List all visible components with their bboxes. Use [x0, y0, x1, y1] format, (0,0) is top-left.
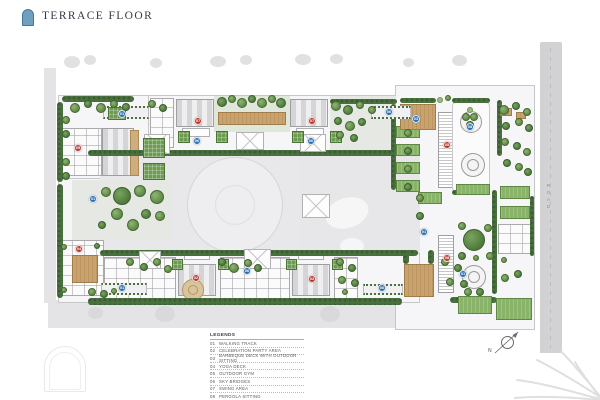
- tree-icon: [437, 97, 443, 103]
- legend-marker-07: 07: [194, 117, 202, 125]
- lawn-patch: [456, 184, 490, 195]
- tree-icon: [153, 258, 161, 266]
- legend-marker-06: 06: [385, 108, 393, 116]
- roof-garden: [216, 131, 228, 143]
- legend-marker-06: 06: [243, 267, 251, 275]
- skylight-canopy: [302, 194, 330, 218]
- tree-icon: [515, 163, 523, 171]
- lawn-patch: [496, 298, 532, 320]
- tree-icon: [404, 129, 412, 137]
- tree-icon: [336, 131, 344, 139]
- tree-icon: [237, 98, 247, 108]
- tree-icon: [61, 244, 67, 250]
- legend-header: LEGENDS: [210, 333, 304, 340]
- legend-row-label: SWING AREA: [219, 386, 248, 391]
- wooden-deck: [218, 112, 286, 125]
- hedge-row: [428, 250, 434, 264]
- developer-logo-watermark-inner: [49, 352, 81, 390]
- legend-rows: 01WALKING TRACK02CELEBRATION PARTY AREA0…: [210, 340, 304, 400]
- roof-garden: [143, 163, 165, 180]
- hedge-row: [452, 98, 490, 103]
- tree-icon: [460, 280, 468, 288]
- legend-marker-02: 02: [192, 274, 200, 282]
- legend-row-label: WALKING TRACK: [219, 341, 257, 346]
- hedge-row: [57, 102, 63, 182]
- tree-icon: [356, 101, 364, 109]
- hedge-row: [530, 196, 534, 256]
- legend-marker-05: 05: [74, 144, 82, 152]
- tree-icon: [150, 190, 164, 204]
- wooden-deck: [404, 264, 434, 297]
- tree-icon: [148, 100, 156, 108]
- compass-north-label: N: [488, 348, 492, 354]
- tree-icon: [467, 107, 473, 113]
- tree-icon: [126, 258, 134, 266]
- hedge-row: [403, 250, 409, 264]
- legend-row-label: SKY BRIDGES: [219, 379, 250, 384]
- tree-icon: [404, 165, 412, 173]
- legend-marker-05: 05: [443, 141, 451, 149]
- roof-garden: [286, 259, 297, 270]
- palm-leaf-watermark: [513, 350, 600, 400]
- tree-icon: [368, 106, 376, 114]
- tree-icon: [336, 258, 344, 266]
- tree-icon: [358, 118, 366, 126]
- legend-row-number: 01: [210, 341, 219, 346]
- tree-icon: [159, 104, 167, 112]
- tree-icon: [348, 264, 356, 272]
- tree-icon: [100, 290, 108, 298]
- legend-row: 01WALKING TRACK: [210, 340, 304, 348]
- lawn-patch: [500, 206, 530, 219]
- tree-icon: [524, 168, 532, 176]
- roof-garden: [178, 131, 190, 143]
- tree-icon: [218, 258, 226, 266]
- tree-icon: [248, 95, 256, 103]
- legend-row: 07SWING AREA: [210, 386, 304, 394]
- tree-icon: [512, 102, 520, 110]
- legend-row-number: 06: [210, 379, 219, 384]
- tree-icon: [62, 158, 70, 166]
- legend-row: 06SKY BRIDGES: [210, 378, 304, 386]
- tree-icon: [463, 229, 485, 251]
- tree-icon: [501, 257, 507, 263]
- legend-row-number: 08: [210, 394, 219, 399]
- tree-icon: [127, 219, 139, 231]
- tree-icon: [343, 105, 353, 115]
- tree-icon: [473, 255, 479, 261]
- legend-row: 03BARBEQUE DECK WITH OUTDOOR SITTING: [210, 355, 304, 363]
- tree-icon: [458, 252, 466, 260]
- legend-row-label: BARBEQUE DECK WITH OUTDOOR SITTING: [219, 353, 304, 363]
- tree-icon: [70, 103, 80, 113]
- legend-marker-02: 02: [308, 275, 316, 283]
- tree-icon: [110, 100, 118, 108]
- tree-icon: [486, 252, 494, 260]
- lawn-patch: [458, 296, 492, 314]
- tree-icon: [334, 117, 342, 125]
- tree-icon: [134, 185, 146, 197]
- legend-marker-06: 06: [307, 137, 315, 145]
- hedge-row: [57, 184, 63, 298]
- tree-icon: [476, 288, 484, 296]
- lawn-patch: [500, 186, 530, 199]
- legend-marker-08: 08: [466, 123, 474, 131]
- tree-icon: [342, 289, 348, 295]
- tree-icon: [515, 118, 523, 126]
- tree-icon: [268, 95, 276, 103]
- tree-icon: [98, 221, 106, 229]
- legend-row-number: 03: [210, 356, 219, 361]
- legend-row-label: OUTDOOR GYM: [219, 371, 254, 376]
- tree-icon: [254, 264, 262, 272]
- legend-marker-01: 01: [118, 284, 126, 292]
- legend-marker-01: 01: [118, 110, 126, 118]
- tree-icon: [470, 113, 478, 121]
- tree-icon: [464, 288, 472, 296]
- tree-icon: [331, 101, 341, 111]
- tree-icon: [484, 224, 492, 232]
- tree-icon: [514, 270, 522, 278]
- legend-marker-04: 04: [75, 245, 83, 253]
- tree-icon: [111, 288, 117, 294]
- legend-row-label: YOGA DECK: [219, 364, 246, 369]
- legend-marker-07: 07: [308, 117, 316, 125]
- legend-marker-06: 06: [193, 137, 201, 145]
- tree-icon: [217, 97, 227, 107]
- tree-icon: [458, 222, 466, 230]
- legend-marker-01: 01: [459, 270, 467, 278]
- roof-garden: [143, 138, 165, 158]
- legend-marker-06: 06: [378, 284, 386, 292]
- tree-icon: [113, 187, 131, 205]
- legend-marker-01: 01: [420, 228, 428, 236]
- tree-icon: [501, 274, 509, 282]
- tree-icon: [350, 134, 358, 142]
- legend-row-number: 05: [210, 371, 219, 376]
- legend-row: 05OUTDOOR GYM: [210, 370, 304, 378]
- tree-icon: [523, 108, 531, 116]
- legend-row: 08PERGOLA SITTING: [210, 393, 304, 400]
- roof-garden: [172, 259, 183, 270]
- tree-icon: [62, 130, 70, 138]
- legend-row-number: 07: [210, 386, 219, 391]
- tree-icon: [416, 194, 424, 202]
- tree-icon: [513, 142, 521, 150]
- tree-icon: [525, 124, 533, 132]
- tree-icon: [416, 212, 424, 220]
- wooden-deck: [72, 255, 98, 283]
- terrace-floor-page: TERRACE FLOOR ROAD: [0, 0, 600, 400]
- tree-icon: [446, 278, 454, 286]
- tree-icon: [62, 116, 70, 124]
- roof-garden: [292, 131, 304, 143]
- tree-icon: [94, 243, 100, 249]
- tree-icon: [164, 265, 172, 273]
- legend-row-number: 02: [210, 348, 219, 353]
- legend: LEGENDS 01WALKING TRACK02CELEBRATION PAR…: [210, 333, 304, 400]
- tree-icon: [338, 276, 346, 284]
- legend-marker-03: 03: [412, 115, 420, 123]
- tree-icon: [276, 98, 286, 108]
- tree-icon: [61, 287, 67, 293]
- hedge-row: [492, 190, 497, 294]
- tree-icon: [111, 208, 123, 220]
- hedge-row: [88, 150, 418, 156]
- tree-icon: [155, 211, 165, 221]
- skylight-canopy: [236, 132, 264, 150]
- legend-row-number: 04: [210, 364, 219, 369]
- tree-icon: [84, 100, 92, 108]
- legend-marker-08: 08: [443, 254, 451, 262]
- hedge-row: [400, 98, 436, 103]
- tree-icon: [141, 209, 151, 219]
- tree-icon: [462, 113, 470, 121]
- tree-icon: [88, 288, 96, 296]
- tree-icon: [502, 122, 510, 130]
- tree-icon: [140, 263, 148, 271]
- tree-icon: [499, 105, 509, 115]
- hedge-row: [62, 96, 134, 102]
- tree-icon: [404, 183, 412, 191]
- tree-icon: [244, 259, 252, 267]
- tree-icon: [445, 95, 451, 101]
- tree-icon: [503, 159, 511, 167]
- legend-row-label: PERGOLA SITTING: [219, 394, 261, 399]
- tree-icon: [101, 187, 111, 197]
- legend-row: 04YOGA DECK: [210, 363, 304, 371]
- tree-icon: [257, 98, 267, 108]
- tree-icon: [523, 148, 531, 156]
- tree-icon: [345, 121, 355, 131]
- tree-icon: [404, 147, 412, 155]
- tree-icon: [96, 103, 106, 113]
- tree-icon: [229, 263, 239, 273]
- tree-icon: [228, 95, 236, 103]
- tree-icon: [351, 279, 359, 287]
- tree-icon: [501, 138, 509, 146]
- hedge-row: [88, 298, 402, 305]
- tree-icon: [62, 172, 70, 180]
- legend-marker-01: 01: [89, 195, 97, 203]
